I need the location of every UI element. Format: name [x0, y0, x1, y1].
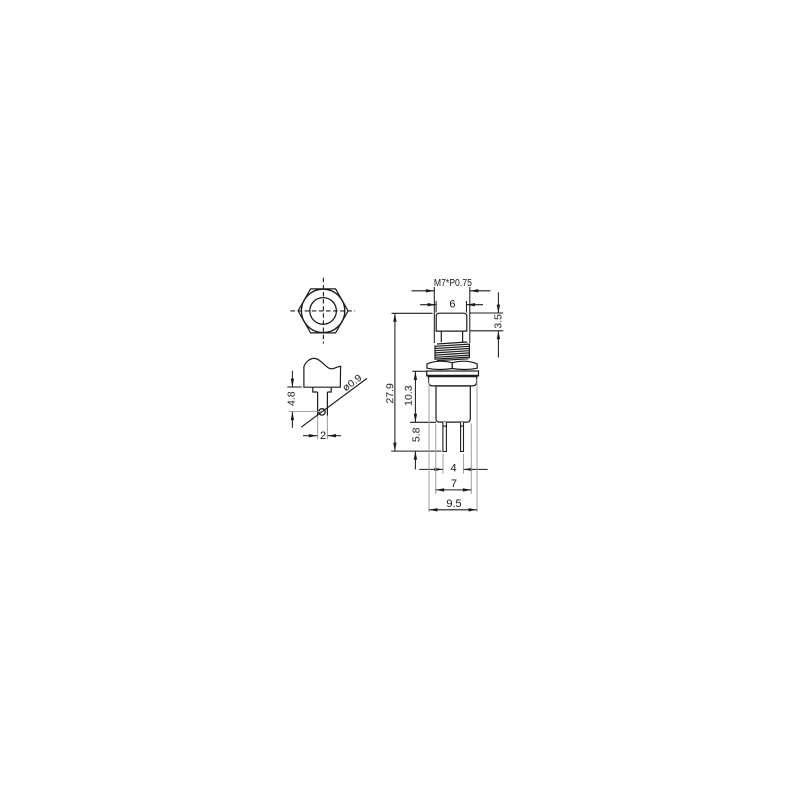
svg-text:3.5: 3.5 — [492, 314, 504, 329]
svg-text:6: 6 — [449, 298, 455, 310]
svg-text:4: 4 — [451, 462, 457, 474]
svg-text:4.8: 4.8 — [285, 391, 297, 406]
svg-text:9.5: 9.5 — [446, 498, 461, 510]
svg-text:2: 2 — [320, 430, 326, 442]
svg-text:7: 7 — [451, 478, 457, 490]
svg-text:27.9: 27.9 — [384, 383, 396, 404]
svg-text:M7*P0.75: M7*P0.75 — [434, 278, 472, 289]
svg-text:10.3: 10.3 — [403, 385, 415, 406]
svg-text:5.8: 5.8 — [410, 427, 422, 442]
